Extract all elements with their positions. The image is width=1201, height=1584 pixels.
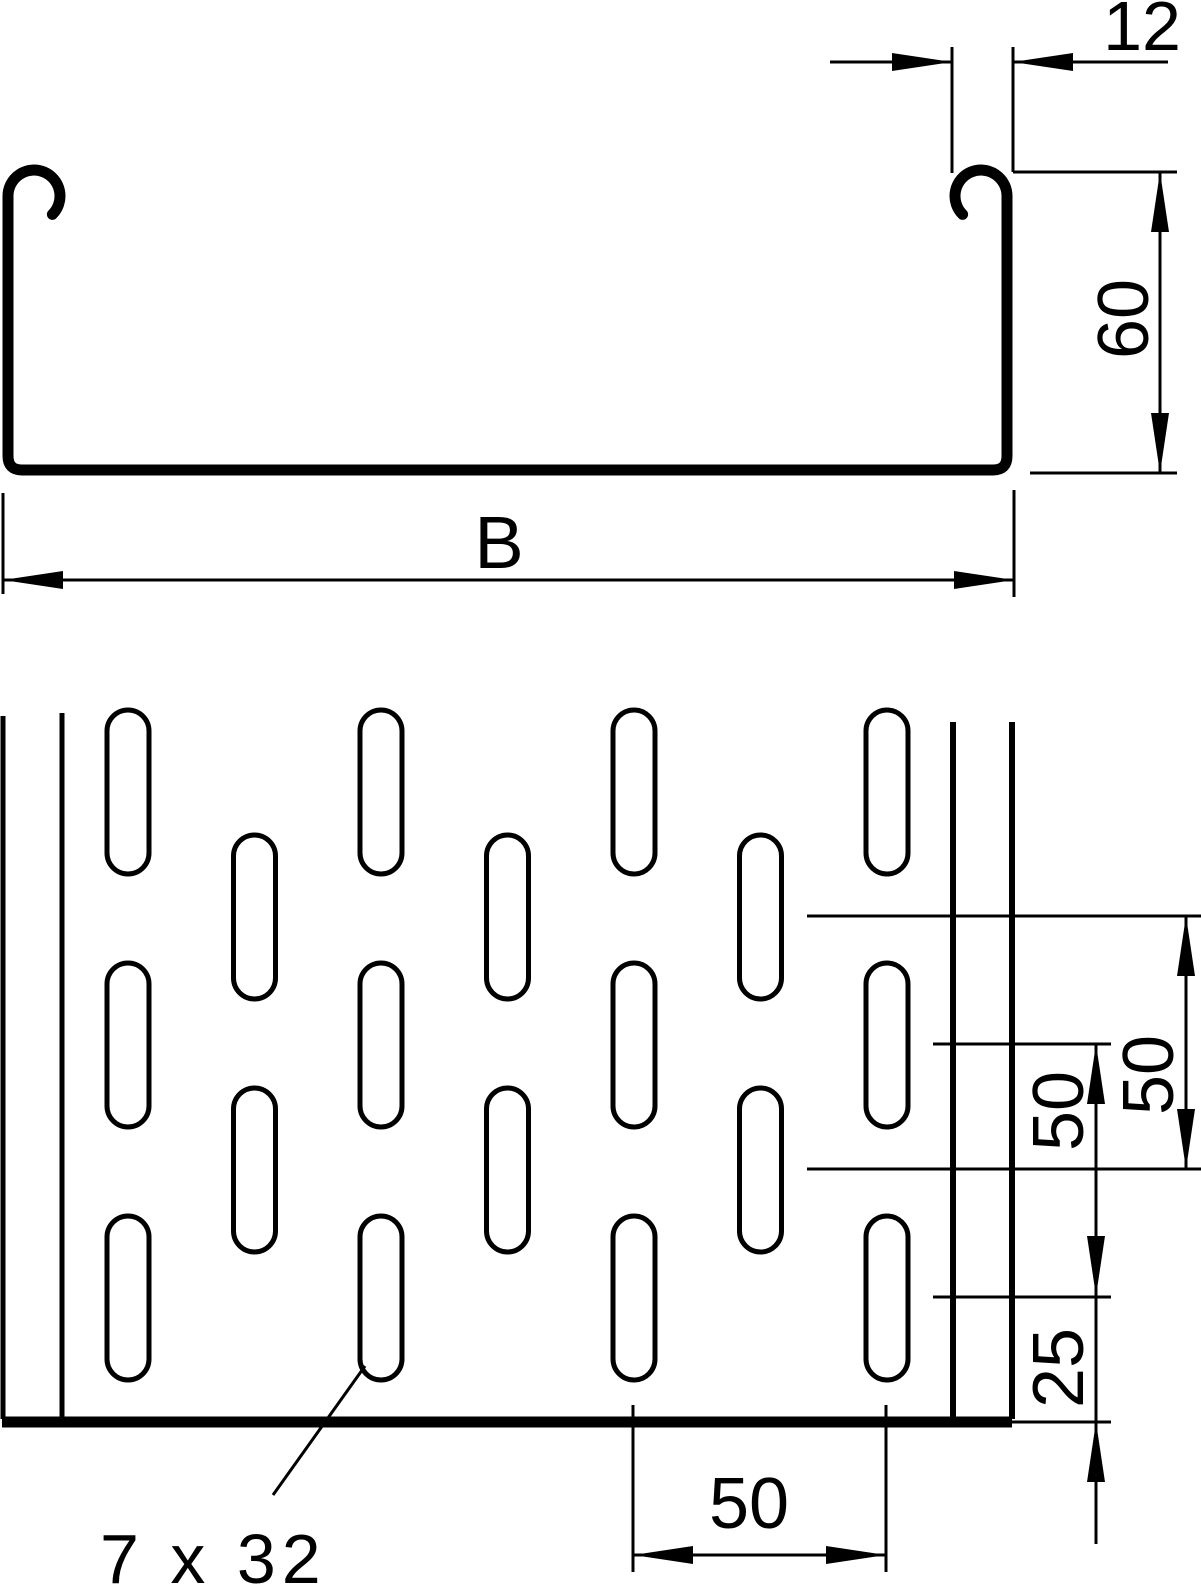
arrowhead-left-icon [633,1546,693,1564]
cable-tray-drawing: 12 60 B [0,0,1201,1584]
dim-label-50-outer: 50 [1109,1035,1189,1115]
slot [740,1088,782,1252]
technical-drawing-page: 12 60 B [0,0,1201,1584]
slot [487,835,529,999]
arrowhead-up-icon [1087,1422,1105,1482]
arrowhead-down-icon [1151,413,1169,473]
slot [234,835,276,999]
dim-label-B: B [474,501,523,584]
plan-view: 50 50 25 50 7 x 32 [2,710,1201,1584]
arrowhead-up-icon [1177,916,1195,976]
arrowhead-right-icon [826,1546,886,1564]
arrowhead-up-icon [1151,172,1169,232]
slot [360,710,402,874]
slot [107,710,149,874]
slot [360,1216,402,1380]
slot [107,1216,149,1380]
arrowhead-left-icon [3,571,63,589]
slot [360,963,402,1127]
arrowhead-right-icon [892,53,952,71]
slot [866,963,908,1127]
dimension-50-bottom: 50 [633,1405,886,1572]
slot [613,1216,655,1380]
slot [866,1216,908,1380]
slot-size-label: 7 x 32 [100,1520,327,1584]
dimension-50-outer: 50 [1109,916,1195,1169]
dim-label-60: 60 [1084,279,1164,359]
dimension-B: B [3,490,1014,597]
slot [107,963,149,1127]
arrowhead-right-icon [954,571,1014,589]
slot [613,963,655,1127]
dimension-25: 25 [1019,1328,1105,1482]
slot [487,1088,529,1252]
cross-section-view: 12 60 B [3,0,1181,597]
dimension-12: 12 [830,0,1181,173]
slot [866,710,908,874]
arrowhead-down-icon [1177,1109,1195,1169]
slot [613,710,655,874]
slot-size-callout: 7 x 32 [100,1366,365,1584]
slot-perforations [107,710,908,1380]
dim-label-25: 25 [1019,1328,1099,1408]
leader-line [273,1366,365,1495]
arrowhead-down-icon [1087,1236,1105,1296]
slot [234,1088,276,1252]
dimension-60: 60 [1013,172,1177,473]
tray-profile-outline [8,170,1007,470]
dim-label-50-bottom: 50 [709,1464,789,1544]
dim-label-50-inner: 50 [1019,1071,1099,1151]
slot [740,835,782,999]
arrowhead-left-icon [1013,53,1073,71]
dim-label-12: 12 [1103,0,1181,65]
